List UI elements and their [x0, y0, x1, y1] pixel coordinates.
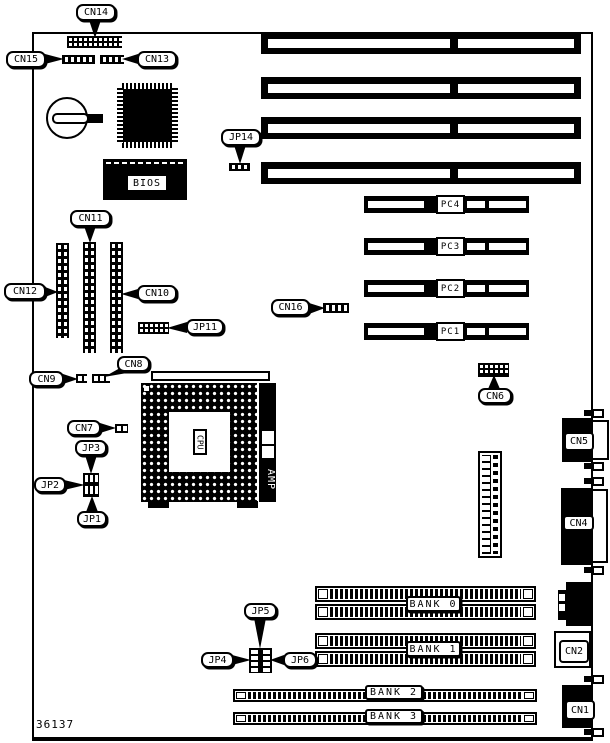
- callout-jp14: JP14: [221, 129, 261, 146]
- callout-cn13: CN13: [137, 51, 177, 68]
- callout-cn9: CN9: [29, 371, 64, 387]
- callout-jp5: JP5: [244, 603, 277, 619]
- callout-cn7: CN7: [67, 420, 101, 436]
- motherboard-diagram: PC4 PC3 PC2 PC1 BIOS CPU AMP: [0, 0, 610, 743]
- callout-jp1: JP1: [77, 511, 107, 527]
- callout-cn11: CN11: [70, 210, 111, 227]
- callout-jp2: JP2: [34, 477, 66, 493]
- callout-jp3: JP3: [75, 440, 107, 456]
- callout-cn10: CN10: [137, 285, 177, 302]
- callout-jp11: JP11: [186, 319, 224, 335]
- callout-jp4: JP4: [201, 652, 234, 668]
- callout-cn14: CN14: [76, 4, 116, 21]
- callout-cn16: CN16: [271, 299, 310, 316]
- callout-cn12: CN12: [4, 283, 46, 300]
- callout-cn15: CN15: [6, 51, 46, 68]
- callout-cn6: CN6: [478, 388, 512, 404]
- callout-jp6: JP6: [283, 652, 317, 668]
- callout-pointers: [0, 0, 610, 743]
- callout-cn8: CN8: [117, 356, 150, 372]
